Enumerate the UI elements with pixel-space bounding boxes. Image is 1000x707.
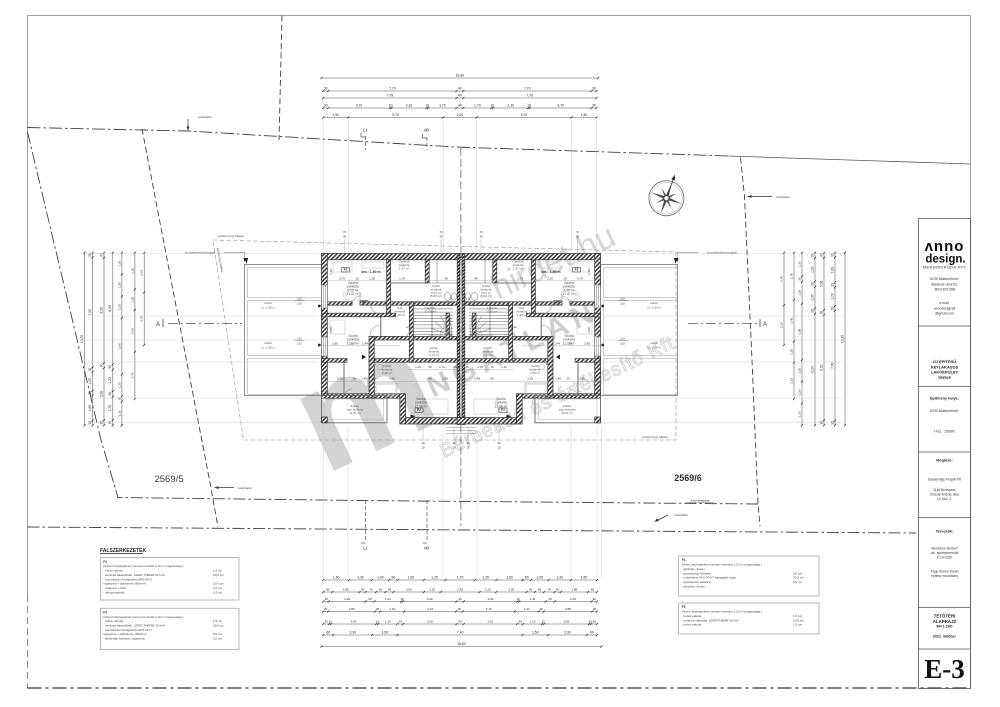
svg-text:30: 30 [421,441,425,445]
svg-text:7,00: 7,00 [88,309,92,316]
svg-text:60: 60 [326,630,330,634]
svg-text:3619-819-588: 3619-819-588 [934,288,955,292]
svg-text:3,10: 3,10 [587,269,591,275]
svg-text:10,0 cm: 10,0 cm [793,618,804,622]
svg-text:1,80: 1,80 [343,587,349,591]
svg-text:210: 210 [620,302,625,306]
svg-text:1,20: 1,20 [117,304,121,310]
svg-text:telekhatár: telekhatár [674,513,688,517]
svg-text:10: 10 [594,377,598,381]
svg-text:2,00: 2,00 [406,587,412,591]
svg-text:120: 120 [297,336,302,340]
svg-text:30: 30 [593,607,597,611]
svg-text:1,10: 1,10 [485,587,491,591]
svg-text:3,08: 3,08 [99,391,103,398]
svg-text:C: C [363,546,369,550]
svg-text:30,0 cm: 30,0 cm [213,624,224,628]
svg-text:2,00: 2,00 [344,597,350,601]
svg-text:12,97 m²: 12,97 m² [561,411,573,415]
svg-text:10: 10 [328,619,332,623]
svg-text:40: 40 [458,86,462,90]
svg-text:1,10: 1,10 [415,365,421,369]
svg-text:F2: F2 [417,408,421,412]
svg-text:30: 30 [324,103,328,107]
svg-text:120: 120 [620,336,625,340]
svg-text:Mészáros Norbert: Mészáros Norbert [931,547,957,551]
svg-text:10: 10 [490,365,494,369]
svg-text:1,20: 1,20 [789,349,793,355]
svg-text:1,10: 1,10 [385,619,391,623]
svg-text:16,60: 16,60 [456,73,465,77]
svg-text:1,50: 1,50 [581,113,588,117]
svg-text:40: 40 [474,276,478,280]
svg-text:40: 40 [428,377,432,381]
svg-text:70: 70 [369,587,373,591]
svg-text:70: 70 [343,230,347,234]
svg-text:1,44: 1,44 [529,597,535,601]
svg-text:1,10: 1,10 [530,619,536,623]
svg-text:MÉRNÖKIRODA KFT: MÉRNÖKIRODA KFT [923,265,966,270]
svg-text:30: 30 [830,283,834,287]
svg-text:1146 Budapest,: 1146 Budapest, [933,488,956,492]
svg-text:10: 10 [375,619,379,623]
svg-text:2,60: 2,60 [564,619,570,623]
svg-text:1,70: 1,70 [517,276,523,280]
svg-text:1,20: 1,20 [797,411,801,417]
svg-text:C: C [363,128,369,132]
svg-text:3,10: 3,10 [487,619,493,623]
svg-text:5,70: 5,70 [392,113,399,117]
svg-text:- glettelés, festés: - glettelés, festés [682,584,706,588]
svg-text:3,10: 3,10 [427,607,433,611]
svg-text:2,58: 2,58 [457,587,463,591]
svg-text:- vékonyvakolat: - vékonyvakolat [103,590,124,594]
svg-text:m.: 1,30 m: m.: 1,30 m [647,345,662,349]
svg-text:10: 10 [527,103,531,107]
svg-text:1,79: 1,79 [439,365,445,369]
svg-text:70: 70 [479,230,483,234]
svg-text:ʌnno: ʌnno [925,238,965,255]
svg-text:10: 10 [428,365,432,369]
svg-text:1,10: 1,10 [467,297,471,303]
svg-text:10: 10 [386,276,390,280]
svg-text:5,0 cm: 5,0 cm [793,571,803,575]
svg-text:10: 10 [563,276,567,280]
svg-text:m.: 1,30 m: m.: 1,30 m [647,305,662,309]
svg-text:7,70: 7,70 [524,86,531,90]
svg-text:1,70: 1,70 [439,103,446,107]
svg-text:2,60: 2,60 [579,377,585,381]
svg-text:2,70: 2,70 [789,273,793,279]
svg-text:1,40: 1,40 [361,377,367,381]
svg-text:3,70: 3,70 [356,103,363,107]
svg-text:1,40: 1,40 [555,377,561,381]
svg-text:6,20: 6,20 [819,364,823,371]
svg-text:Balatone utca 63.: Balatone utca 63. [931,282,957,286]
svg-text:40: 40 [458,103,462,107]
svg-text:F5: F5 [556,301,560,305]
svg-text:28: 28 [368,597,372,601]
svg-text:6,20: 6,20 [810,366,814,373]
svg-text:építési hely határa: építési hely határa [218,234,244,238]
svg-text:2,90: 2,90 [427,597,433,601]
svg-text:3,40 m²: 3,40 m² [382,371,392,375]
svg-text:F2: F2 [344,268,348,272]
svg-text:Megbízó:: Megbízó: [936,459,952,463]
svg-text:30: 30 [810,282,814,286]
svg-text:e-ov védősáv: e-ov védősáv [690,499,709,503]
svg-text:F3: F3 [103,610,107,614]
svg-text:30: 30 [466,441,470,445]
svg-text:2,10: 2,10 [507,103,514,107]
svg-text:520: 520 [297,296,302,300]
svg-text:A: A [763,322,767,328]
svg-text:telekhatár: telekhatár [776,195,790,199]
svg-text:3,08: 3,08 [819,281,823,288]
svg-text:10: 10 [497,446,501,450]
svg-text:1,20: 1,20 [108,377,112,384]
svg-text:1,30: 1,30 [797,261,801,267]
svg-text:3,10: 3,10 [427,619,433,623]
svg-text:30: 30 [439,235,443,239]
svg-text:2,40: 2,40 [130,328,134,334]
svg-text:(5,06 m²): (5,06 m²) [430,294,442,298]
svg-text:5,70: 5,70 [339,276,345,280]
svg-text:40: 40 [458,607,462,611]
svg-text:30: 30 [117,397,121,401]
svg-text:2,60: 2,60 [337,377,343,381]
svg-text:Cházár András utca: Cházár András utca [930,492,959,496]
svg-text:építési hely határa: építési hely határa [642,435,668,439]
svg-text:30: 30 [497,441,501,445]
svg-text:10: 10 [546,377,550,381]
svg-text:(11,47 m²): (11,47 m²) [562,292,577,296]
svg-text:30: 30 [324,86,328,90]
svg-text:2,30: 2,30 [564,630,571,634]
svg-text:10: 10 [517,597,521,601]
svg-text:30: 30 [592,619,596,623]
svg-text:annodesign18: annodesign18 [934,306,955,310]
svg-text:3,08: 3,08 [797,328,801,334]
svg-text:A: A [156,322,160,328]
svg-text:2,80: 2,80 [584,341,590,345]
svg-text:- gipszkarton előtétfal: - gipszkarton előtétfal [682,580,711,584]
svg-text:Építmény helye:: Építmény helye: [930,396,959,401]
svg-text:7,79: 7,79 [387,93,394,97]
svg-text:Hrsz.: 2569/6: Hrsz.: 2569/6 [934,430,954,434]
svg-text:Papp Kornél Árpád: Papp Kornél Árpád [931,569,959,573]
svg-text:30: 30 [108,421,112,425]
svg-text:2,78: 2,78 [779,276,783,282]
svg-text:1,60: 1,60 [88,405,92,412]
svg-text:60: 60 [538,587,542,591]
svg-text:2,10: 2,10 [406,103,413,107]
svg-text:1,48 m²: 1,48 m² [517,313,527,317]
svg-text:1,20: 1,20 [117,282,121,288]
svg-text:5,70: 5,70 [521,113,528,117]
svg-text:1,10: 1,10 [429,587,435,591]
svg-text:ÚJ ÉPÍTÉSŰ: ÚJ ÉPÍTÉSŰ [933,359,956,364]
svg-text:ragasztva + dübelezve (6db/m²): ragasztva + dübelezve (6db/m²) [103,582,146,586]
svg-text:28: 28 [548,597,552,601]
svg-text:30: 30 [88,391,92,395]
svg-text:1,50: 1,50 [332,113,339,117]
svg-text:1,20: 1,20 [797,389,801,395]
svg-text:1,30: 1,30 [357,575,364,579]
svg-text:10: 10 [324,377,328,381]
svg-text:10: 10 [355,276,359,280]
svg-text:2,60: 2,60 [351,619,357,623]
svg-text:13,00 m²: 13,00 m² [486,309,498,313]
svg-text:1,5 cm: 1,5 cm [793,623,803,627]
svg-text:F2: F2 [575,268,579,272]
svg-text:7,40: 7,40 [457,630,464,634]
svg-text:2569/5: 2569/5 [154,474,183,485]
svg-text:F5: F5 [682,605,686,609]
svg-text:@gmail.com: @gmail.com [935,312,954,316]
svg-text:2569/6: 2569/6 [674,473,702,483]
svg-text:1,25: 1,25 [482,575,489,579]
svg-text:55: 55 [388,587,392,591]
svg-text:8230 Balatonfüred,: 8230 Balatonfüred, [930,277,959,281]
svg-text:3,10: 3,10 [329,269,333,275]
svg-text:30: 30 [797,277,801,281]
svg-text:50: 50 [392,575,396,579]
svg-text:10: 10 [466,446,470,450]
svg-text:1,60: 1,60 [830,267,834,274]
svg-text:2,78: 2,78 [140,315,144,321]
svg-text:1,50: 1,50 [581,575,588,579]
svg-text:210: 210 [620,342,625,346]
svg-text:210: 210 [297,302,302,306]
svg-text:(5,06 m²): (5,06 m²) [480,294,492,298]
svg-text:60: 60 [379,587,383,591]
svg-text:FALSZERKEZETEK: FALSZERKEZETEK [100,548,147,554]
svg-text:- kerámia falazóblokk, LEIER T: - kerámia falazóblokk, LEIER THERM 30 N+… [103,624,165,628]
svg-text:30: 30 [592,103,596,107]
svg-text:2,48: 2,48 [442,377,448,381]
svg-text:2,90: 2,90 [389,377,395,381]
svg-text:40: 40 [361,587,365,591]
svg-text:1,00: 1,00 [377,575,384,579]
svg-text:0,2 cm: 0,2 cm [213,590,223,594]
svg-text:12,97 m²: 12,97 m² [349,411,361,415]
svg-text:bm.: 1,90 m: bm.: 1,90 m [541,270,560,274]
svg-text:e-mail:: e-mail: [939,301,949,305]
svg-text:(Vizes helyiségeknél csempe bu: (Vizes helyiségeknél csempe burkolat 2,1… [103,615,183,619]
svg-text:30: 30 [830,306,834,310]
svg-text:30: 30 [108,392,112,396]
svg-text:3,70: 3,70 [557,103,564,107]
svg-text:7,00: 7,00 [830,362,834,369]
svg-text:1,10: 1,10 [449,297,453,303]
svg-text:1,20: 1,20 [797,290,801,296]
svg-text:10,0 cm: 10,0 cm [213,582,224,586]
svg-text:70: 70 [548,587,552,591]
svg-text:1,20: 1,20 [117,382,121,388]
svg-text:30: 30 [593,597,597,601]
svg-text:1,44: 1,44 [385,597,391,601]
svg-text:2,40: 2,40 [789,317,793,323]
svg-text:2,90: 2,90 [488,597,494,601]
svg-text:- kerámia falazóblokk, LEIER T: - kerámia falazóblokk, LEIER THERM 30 N+… [103,573,165,577]
svg-text:1,80: 1,80 [571,587,577,591]
svg-text:30: 30 [108,365,112,369]
svg-text:30: 30 [540,607,544,611]
svg-text:2,90: 2,90 [527,377,533,381]
svg-text:(11,47 m²): (11,47 m²) [346,292,361,296]
svg-text:10: 10 [400,597,404,601]
svg-text:2,80: 2,80 [332,341,338,345]
svg-text:40: 40 [458,93,462,97]
svg-text:2022. október: 2022. október [933,635,957,639]
svg-text:3,08: 3,08 [329,327,333,333]
svg-text:1,70: 1,70 [474,103,481,107]
svg-text:6,20: 6,20 [99,307,103,314]
svg-text:2,70: 2,70 [130,372,134,378]
svg-text:14. fszt. 2.: 14. fszt. 2. [937,497,952,501]
svg-text:30: 30 [568,341,572,345]
svg-text:50: 50 [525,575,529,579]
svg-text:1,20: 1,20 [810,294,814,301]
svg-text:30: 30 [810,309,814,313]
svg-text:210: 210 [297,342,302,346]
svg-text:70: 70 [576,230,580,234]
svg-text:1,44: 1,44 [362,341,368,345]
svg-text:60: 60 [591,587,595,591]
svg-text:30: 30 [452,441,456,445]
svg-text:1,70: 1,70 [399,276,405,280]
svg-text:2,10: 2,10 [369,276,375,280]
svg-text:2,30: 2,30 [349,630,356,634]
svg-text:m.: 1,30 m: m.: 1,30 m [261,305,276,309]
svg-text:TERVE: TERVE [938,375,952,380]
svg-text:10: 10 [532,276,536,280]
svg-text:2,71 m²: 2,71 m² [483,353,493,357]
svg-text:1,20: 1,20 [130,296,134,302]
svg-text:6,20: 6,20 [108,305,112,312]
svg-text:1,25: 1,25 [431,575,438,579]
svg-text:1,44: 1,44 [554,341,560,345]
svg-text:70: 70 [439,230,443,234]
svg-text:30: 30 [576,235,580,239]
svg-text:É 19-0252: É 19-0252 [937,555,952,560]
svg-text:10: 10 [421,446,425,450]
svg-text:10: 10 [541,619,545,623]
svg-text:30: 30 [88,368,92,372]
svg-text:10: 10 [352,377,356,381]
svg-text:30: 30 [819,253,823,257]
svg-text:40: 40 [444,276,448,280]
svg-text:1,20: 1,20 [88,378,92,385]
svg-text:10: 10 [566,377,570,381]
svg-text:2,10: 2,10 [140,269,144,275]
svg-text:F2: F2 [501,408,505,412]
svg-text:LAKÓÉPÜLET: LAKÓÉPÜLET [931,370,959,375]
svg-text:8,0 cm: 8,0 cm [213,632,223,636]
svg-text:- kerámia válaszfal, LEIERTHER: - kerámia válaszfal, LEIERTHERM 10 N+F [682,618,740,622]
svg-text:30: 30 [376,607,380,611]
svg-text:Tervezők:: Tervezők: [936,530,953,534]
svg-text:1,20: 1,20 [117,260,121,266]
svg-text:40: 40 [490,377,494,381]
svg-text:2,00: 2,00 [457,113,464,117]
svg-text:2,71 m²: 2,71 m² [429,353,439,357]
svg-text:7,70: 7,70 [389,86,396,90]
svg-text:telekhatár: telekhatár [238,486,252,490]
svg-text:F4: F4 [682,558,686,562]
svg-text:55: 55 [529,587,533,591]
svg-text:8230 Balatonfüred,: 8230 Balatonfüred, [930,409,959,413]
svg-text:2,00: 2,00 [570,597,576,601]
svg-text:40: 40 [465,365,469,369]
svg-text:30: 30 [479,235,483,239]
svg-text:1,50: 1,50 [333,575,340,579]
svg-text:2,80: 2,80 [349,607,355,611]
svg-text:1,20: 1,20 [830,293,834,300]
svg-text:m.: 1,30 m: m.: 1,30 m [261,345,276,349]
svg-text:KÉTLAKASOS: KÉTLAKASOS [931,364,959,369]
svg-text:1,30: 1,30 [108,405,112,412]
svg-text:30,0 cm: 30,0 cm [213,573,224,577]
svg-text:2,88: 2,88 [565,607,571,611]
svg-text:1,37 m²: 1,37 m² [399,266,409,270]
svg-text:30: 30 [324,607,328,611]
svg-text:30: 30 [99,253,103,257]
svg-text:1,44: 1,44 [389,607,395,611]
svg-text:30: 30 [592,86,596,90]
svg-text:34: 34 [518,619,522,623]
svg-text:F2: F2 [103,560,107,564]
svg-text:F5: F5 [362,301,366,305]
svg-text:40: 40 [453,365,457,369]
svg-text:- belső vakolat: - belső vakolat [682,623,702,627]
svg-text:1,50: 1,50 [382,630,389,634]
svg-text:1,44: 1,44 [524,607,530,611]
svg-text:ragasztva + dübelezve (6db/m²): ragasztva + dübelezve (6db/m²) [103,632,146,636]
svg-text:10: 10 [452,446,456,450]
svg-text:Sasadvölgy Projekt Kft: Sasadvölgy Projekt Kft [928,478,961,482]
svg-text:1,00: 1,00 [536,575,543,579]
svg-text:30: 30 [324,597,328,601]
svg-text:1,48 m²: 1,48 m² [395,313,405,317]
svg-text:520: 520 [620,296,625,300]
svg-text:40: 40 [458,619,462,623]
svg-text:telekhatár: telekhatár [198,115,212,119]
svg-text:1,30: 1,30 [117,410,121,416]
svg-text:2,48: 2,48 [474,377,480,381]
svg-text:16,60: 16,60 [457,642,466,646]
svg-text:34: 34 [398,619,402,623]
svg-text:E-3: E-3 [924,654,965,684]
svg-text:5,0 cm: 5,0 cm [793,580,803,584]
svg-text:fa szerkezetű pergola: fa szerkezetű pergola [707,251,737,255]
svg-text:13,00 m²: 13,00 m² [424,309,436,313]
svg-text:3,08: 3,08 [587,327,591,333]
svg-text:1,30: 1,30 [810,266,814,273]
svg-text:TETŐTÉRI: TETŐTÉRI [934,614,956,619]
svg-text:2,10: 2,10 [789,377,793,383]
svg-text:1,37 m²: 1,37 m² [513,266,523,270]
svg-text:(Vizes helyiségeknél csempe bu: (Vizes helyiségeknél csempe burkolat 2,1… [103,564,183,568]
svg-text:60: 60 [326,587,330,591]
svg-text:30: 30 [350,341,354,345]
svg-text:M=1:100: M=1:100 [937,624,954,629]
svg-text:- gipszkarton előtétfal: - gipszkarton előtétfal [682,571,711,575]
svg-text:10,20: 10,20 [80,335,84,343]
svg-text:1,70: 1,70 [457,575,464,579]
svg-text:+2,02: +2,02 [405,325,413,329]
